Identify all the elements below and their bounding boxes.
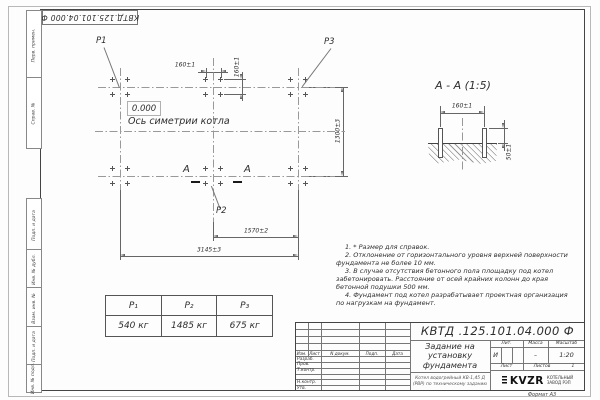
dimension-line [213,237,298,238]
dimension-line [484,106,485,127]
dimension-line [489,128,508,129]
dimension-arrow-icon [213,235,218,237]
anchor-bolt-marker [218,166,223,171]
elevation-value: 0.000 [132,104,156,114]
company-cell: KVZR КОТЕЛЬНЫЙ ЗАВОД РЭП [490,370,585,391]
p2-label: P2 [216,206,227,216]
dim-160-section: 160±1 [452,103,472,110]
col-sign: Подп. [359,350,385,356]
centerline [95,131,345,132]
dimension-arrow-icon [221,70,226,72]
col-date: Дата [385,350,410,356]
anchor-bolt-marker [288,181,293,186]
dimension-arrow-icon [502,123,504,128]
elevation-marker: 0.000 [127,101,161,116]
row-utv: Утв. [297,386,306,391]
dimension-line [120,256,299,257]
row-nkontr: Н.контр. [297,380,316,385]
notes-block: 1. * Размер для справок. 2. Отклонение о… [336,243,576,307]
dimension-line [298,190,299,260]
dimension-arrow-icon [293,254,298,256]
anchor-bolt-marker [288,92,293,97]
mass-label: Масса [523,340,548,347]
dimension-arrow-icon [240,94,242,99]
anchor-bolt-marker [218,92,223,97]
note-3: 3. В случае отсутствия бетонного пола пл… [336,267,576,291]
anchor-bolt-marker [110,77,115,82]
centerline [98,176,335,177]
anchor-bolt-marker [288,77,293,82]
anchor-bolt-marker [125,77,130,82]
dim-1570: 1570±2 [244,228,268,235]
dimension-line [213,222,214,241]
anchor-bolt-left [438,128,443,158]
anchor-bolt-marker [110,166,115,171]
dimension-arrow-icon [201,70,206,72]
dimension-arrow-icon [479,111,484,113]
sheets-value: 1 [572,364,575,369]
dimension-arrow-icon [293,235,298,237]
sheets-cell: Листов 1 [523,363,585,370]
col-doc: N докум. [321,350,359,356]
anchor-bolt-marker [288,166,293,171]
note-2: 2. Отклонение от горизонтального уровня … [336,251,576,267]
dim-160-top: 160±1 [175,62,195,69]
sheet-label: Лист [490,363,523,370]
company-logo-bars-icon [502,376,507,385]
company-name-line2: ЗАВОД РЭП [547,381,573,386]
company-logo-text: KVZR [510,375,544,387]
section-cut-letter-left: А [183,164,190,175]
anchor-bolt-marker [218,77,223,82]
load-table-value-p1: 540 кг [106,316,162,336]
dimension-line [440,113,484,114]
scale-value: 1:20 [548,347,585,363]
centerline [98,87,335,88]
section-cut-mark-left [191,181,200,184]
p1-label: P1 [96,36,107,46]
centerline [213,58,214,222]
row-prov: Пров. [297,362,310,367]
dimension-line [440,106,441,127]
note-1: 1. * Размер для справок. [336,243,576,251]
anchor-bolt-marker [203,77,208,82]
dim-1300: 1300±3 [335,119,342,143]
note-4: 4. Фундамент под котел разрабатывает про… [336,291,576,307]
anchor-bolt-marker [125,181,130,186]
anchor-bolt-marker [110,181,115,186]
anchor-bolt-marker [203,166,208,171]
anchor-bolt-marker [203,92,208,97]
p3-label: P3 [324,37,335,47]
company-name: КОТЕЛЬНЫЙ ЗАВОД РЭП [547,376,573,385]
load-table-value-p2: 1485 кг [162,316,218,336]
dimension-line [120,190,121,260]
anchor-bolt-marker [303,92,308,97]
row-tkontr: Т.контр. [297,368,316,373]
section-view-title: А - А (1:5) [420,79,506,92]
lit-label: Лит. [490,340,523,347]
load-table-header-p3: P₃ [217,296,272,315]
anchor-bolt-marker [303,181,308,186]
title-block-doc-number: КВТД .125.101.04.000 Ф [410,322,585,340]
load-table-header-p1: P₁ [106,296,162,315]
dimension-arrow-icon [440,111,445,113]
anchor-bolt-marker [110,92,115,97]
dim-3145: 3145±3 [197,247,221,254]
row-razrab: Разраб. [297,357,314,362]
drawing-sheet: КВТД.125.101.04.000 Ф Перв. примен. Спра… [0,0,600,400]
load-table: P₁ P₂ P₃ 540 кг 1485 кг 675 кг [105,295,273,337]
load-table-value-p3: 675 кг [217,316,272,336]
anchor-bolt-marker [125,92,130,97]
dimension-arrow-icon [120,254,125,256]
sheets-label: Листов [534,364,551,369]
anchor-bolt-right [482,128,487,158]
load-table-header-p2: P₂ [162,296,218,315]
dim-160-side: 160±1 [234,57,241,77]
anchor-bolt-marker [203,181,208,186]
section-cut-letter-right: А [244,164,251,175]
lit-value: И [490,347,501,363]
scale-label: Масштаб [548,340,585,347]
section-cut-mark-right [233,181,242,184]
dimension-arrow-icon [502,143,504,148]
symmetry-axis-label: Ось симетрии котла [128,116,230,127]
anchor-bolt-marker [303,166,308,171]
dimension-arrow-icon [341,171,343,176]
dim-50-section: 50±1 [506,144,513,160]
col-izm: Изм. [295,350,308,356]
anchor-bolt-marker [218,181,223,186]
load-table-value-row: 540 кг 1485 кг 675 кг [106,316,272,336]
title-block-subtitle: Котел водогрейный КВ-1,45 Д (РВР) по тех… [412,372,488,391]
load-table-header-row: P₁ P₂ P₃ [106,296,272,316]
title-block-title: Задание на установку фундамента [412,340,488,372]
anchor-bolt-marker [125,166,130,171]
mass-value: – [523,347,548,363]
dimension-arrow-icon [240,74,242,79]
format-note: Формат А3 [498,392,586,399]
centerline [298,68,299,190]
dimension-arrow-icon [341,87,343,92]
col-list: Лист [308,350,321,356]
